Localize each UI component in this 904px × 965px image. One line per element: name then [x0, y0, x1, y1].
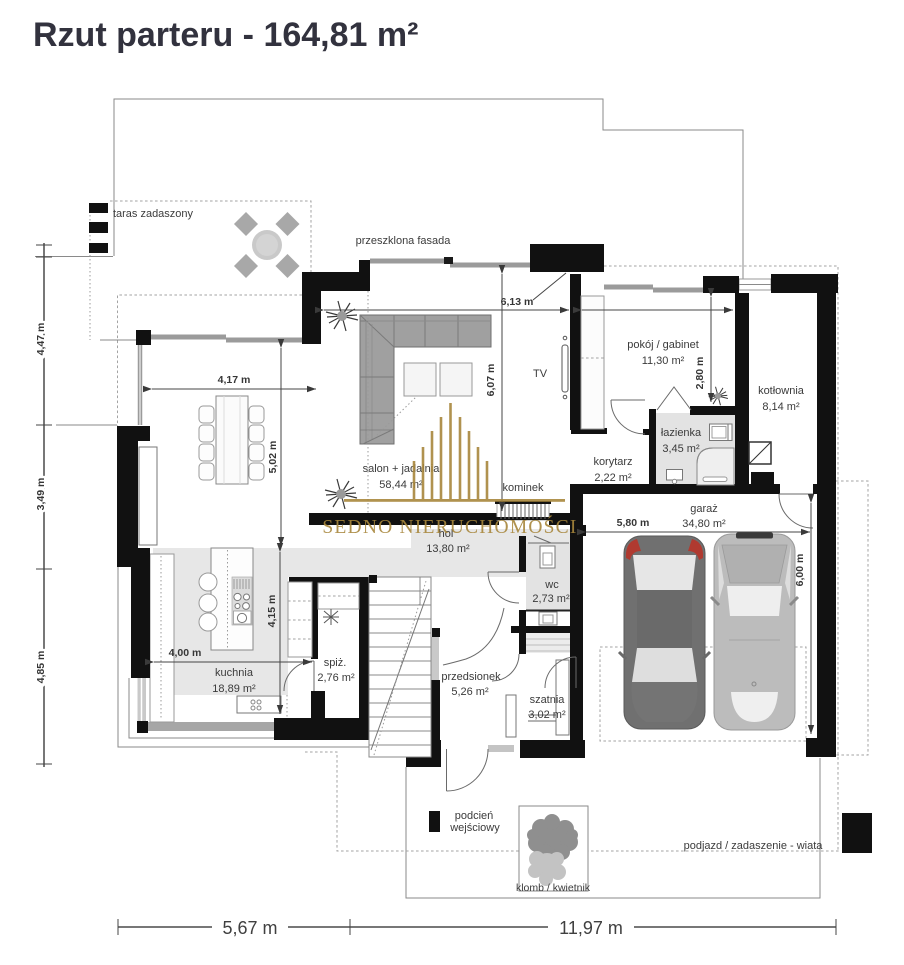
svg-text:łazienka: łazienka: [661, 427, 702, 439]
svg-text:11,30 m²: 11,30 m²: [642, 355, 685, 367]
svg-text:garaż: garaż: [690, 503, 718, 515]
svg-text:2,73 m²: 2,73 m²: [532, 593, 570, 605]
svg-text:kuchnia: kuchnia: [215, 667, 254, 679]
svg-text:11,97 m: 11,97 m: [559, 918, 623, 938]
svg-text:4,47 m: 4,47 m: [35, 323, 47, 356]
svg-text:5,26 m²: 5,26 m²: [451, 686, 489, 698]
svg-text:34,80 m²: 34,80 m²: [682, 518, 726, 530]
svg-text:SEDNO NIERUCHOMOŚCI: SEDNO NIERUCHOMOŚCI: [322, 516, 577, 538]
svg-text:korytarz: korytarz: [593, 456, 632, 468]
svg-text:pokój / gabinet: pokój / gabinet: [627, 339, 699, 351]
svg-text:wc: wc: [544, 579, 559, 591]
svg-text:6,00 m: 6,00 m: [794, 554, 806, 587]
svg-text:2,76 m²: 2,76 m²: [317, 672, 355, 684]
svg-text:Rzut parteru - 164,81 m²: Rzut parteru - 164,81 m²: [33, 16, 418, 54]
svg-text:5,80 m: 5,80 m: [617, 517, 650, 529]
svg-text:kominek: kominek: [503, 482, 544, 494]
svg-text:kotłownia: kotłownia: [758, 385, 805, 397]
svg-text:5,67 m: 5,67 m: [222, 918, 277, 938]
svg-text:3,49 m: 3,49 m: [35, 478, 47, 511]
svg-text:4,15 m: 4,15 m: [266, 595, 278, 628]
svg-text:4,00 m: 4,00 m: [169, 647, 202, 659]
svg-text:przedsionek: przedsionek: [441, 671, 501, 683]
svg-text:18,89 m²: 18,89 m²: [212, 683, 256, 695]
svg-text:podjazd / zadaszenie - wiata: podjazd / zadaszenie - wiata: [684, 840, 824, 852]
svg-text:TV: TV: [533, 368, 548, 380]
svg-text:podcień: podcień: [455, 810, 494, 822]
svg-text:3,02 m²: 3,02 m²: [528, 709, 566, 721]
svg-text:klomb / kwietnik: klomb / kwietnik: [516, 882, 591, 894]
svg-text:6,07 m: 6,07 m: [485, 364, 497, 397]
svg-text:spiż.: spiż.: [324, 657, 347, 669]
svg-text:wejściowy: wejściowy: [449, 822, 500, 834]
svg-text:8,14 m²: 8,14 m²: [762, 401, 800, 413]
svg-text:58,44 m²: 58,44 m²: [379, 479, 423, 491]
svg-text:4,85 m: 4,85 m: [35, 651, 47, 684]
svg-text:4,17 m: 4,17 m: [218, 374, 251, 386]
svg-text:3,45 m²: 3,45 m²: [662, 443, 700, 455]
svg-text:13,80 m²: 13,80 m²: [426, 543, 470, 555]
svg-text:salon + jadalnia: salon + jadalnia: [363, 463, 441, 475]
svg-text:taras zadaszony: taras zadaszony: [113, 208, 194, 220]
svg-text:przeszklona fasada: przeszklona fasada: [356, 235, 452, 247]
svg-text:2,22 m²: 2,22 m²: [594, 472, 632, 484]
svg-text:szatnia: szatnia: [530, 694, 566, 706]
svg-text:5,02 m: 5,02 m: [267, 441, 279, 474]
svg-text:6,13 m: 6,13 m: [501, 296, 534, 308]
svg-text:2,80 m: 2,80 m: [694, 357, 706, 390]
